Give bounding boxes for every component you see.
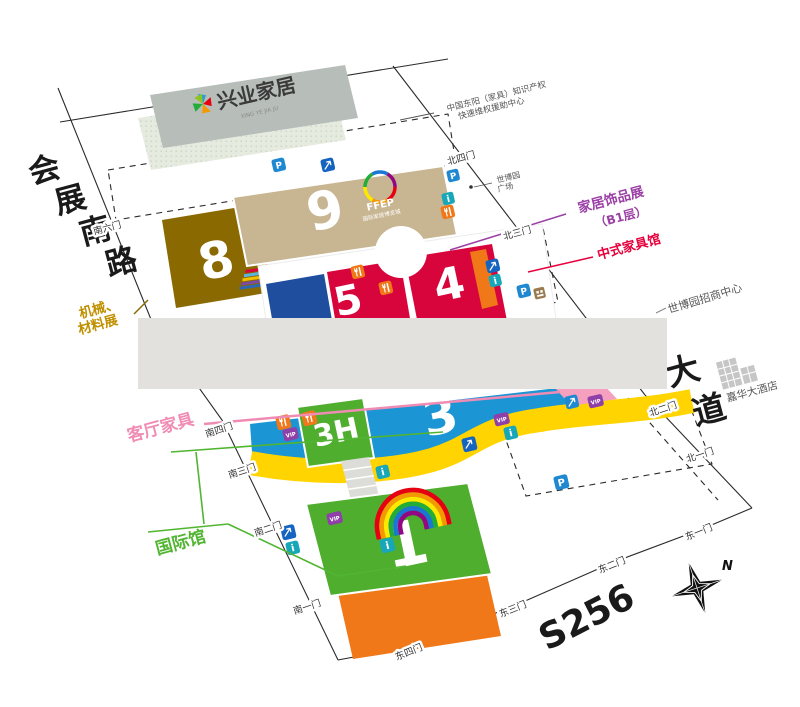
- hotel-building: 嘉华大酒店: [716, 353, 779, 404]
- gate-north-4: 北四门: [446, 149, 477, 168]
- gate-south-2: 南二门: [253, 519, 284, 539]
- avenue-char1: 大: [662, 348, 704, 394]
- road-s256-label: S256: [532, 577, 641, 659]
- avenue-char2: 道: [688, 387, 730, 433]
- escalator-icon: [320, 157, 336, 173]
- parking-icon: P: [553, 474, 570, 491]
- callout-machinery: 机械、 材料展: [76, 295, 121, 338]
- road-avenue-name: 大 道: [662, 348, 730, 433]
- callout-plaza: 世博园 广场: [469, 169, 521, 194]
- investment-center-label: 世博园招商中心: [666, 280, 744, 316]
- compass-rose: N: [663, 554, 733, 622]
- xingye-building: 兴业家居 XING YE JIA JU: [138, 65, 358, 170]
- gate-south-1: 南一门: [292, 597, 323, 617]
- gate-east-3: 东三门: [497, 598, 528, 620]
- hall-3h: 3H: [297, 398, 374, 467]
- compass-n-label: N: [722, 559, 733, 574]
- gate-east-2: 东二门: [596, 554, 627, 576]
- escalator-icon: [280, 524, 297, 541]
- chinese-furniture-label: 中式家具馆: [595, 231, 662, 263]
- callout-investment-center: 世博园招商中心: [656, 280, 744, 316]
- censored-strip: [138, 318, 667, 389]
- parking-icon: P: [446, 168, 460, 183]
- parking-icon: P: [271, 157, 287, 173]
- road-west-char4: 路: [102, 241, 142, 284]
- living-room-label: 客厅家具: [124, 409, 196, 447]
- expo-map: 兴业家居 XING YE JIA JU P 8 9 FFEP 国际家居博览城: [0, 0, 800, 707]
- callout-ip-center: 中国东阳（家具）知识产权 快速维权援助中心: [400, 79, 548, 122]
- info-icon: i: [285, 540, 301, 556]
- gate-south-3: 南三门: [227, 461, 258, 481]
- road-west-name: 会 展 南 路: [25, 149, 142, 284]
- gate-east-1: 东一门: [683, 521, 714, 543]
